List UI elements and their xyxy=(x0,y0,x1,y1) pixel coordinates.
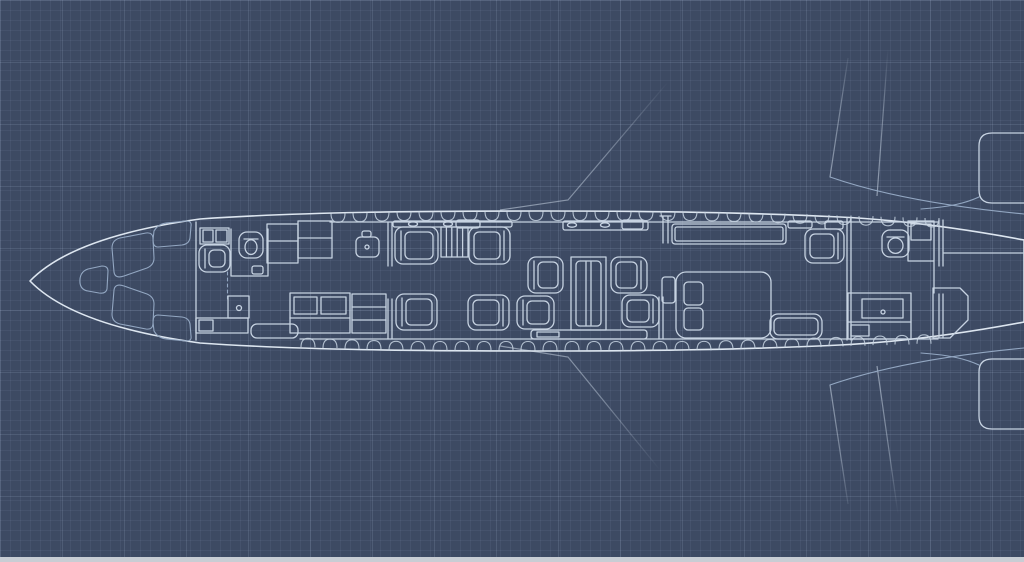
club-cabinet xyxy=(441,227,468,257)
galley-faucet xyxy=(362,231,371,237)
conf-seat-br-cushion xyxy=(627,300,649,322)
bottom-cabin-window xyxy=(587,342,601,351)
wing-leading-edge-bottom xyxy=(500,346,660,470)
bottom-cabin-window xyxy=(873,336,887,345)
conf-table-top xyxy=(576,261,601,326)
aft-club-seat-cushion xyxy=(810,234,834,258)
rail-cup-d xyxy=(601,223,610,227)
fwd-closet xyxy=(352,294,386,333)
aft-lav-toilet-bowl xyxy=(888,238,903,253)
top-cabin-window xyxy=(573,212,587,221)
galley-lower-tray-a xyxy=(294,297,317,314)
floor-plan-drawing xyxy=(0,0,1024,562)
bottom-cabin-window xyxy=(653,342,667,351)
top-cabin-window xyxy=(463,212,477,221)
fwd-lav-door-handle xyxy=(252,266,263,274)
galley-upper-a xyxy=(267,224,298,263)
divan-cushion-b xyxy=(684,308,703,330)
top-cabin-window xyxy=(397,212,411,221)
windscreen-upper-outer xyxy=(153,221,191,247)
fuselage-outline xyxy=(30,211,1024,351)
club-seat-2-cushion xyxy=(474,232,500,259)
aft-vanity-drain xyxy=(881,310,885,314)
cockpit-windscreen-panels xyxy=(80,221,191,341)
bottom-cabin-window xyxy=(345,340,359,349)
wing-leading-edge-top xyxy=(500,82,668,210)
top-cabin-window xyxy=(485,212,499,221)
conf-seat-tr-cushion xyxy=(616,262,637,288)
windscreen-center xyxy=(80,266,108,293)
engine-pylon-top xyxy=(921,197,979,209)
aft-vanity-drawer xyxy=(851,325,869,336)
entry-counter-drawer xyxy=(199,320,213,331)
windscreen-lower-inner xyxy=(112,285,154,329)
engine-nacelle-top xyxy=(979,133,1024,203)
galley-sink xyxy=(356,237,379,257)
aft-vanity xyxy=(848,293,911,339)
bottom-cabin-window xyxy=(433,342,447,351)
engine-nacelle-bottom xyxy=(979,359,1024,429)
engine-pylon-bottom xyxy=(921,353,979,365)
aft-bench-cushion xyxy=(774,318,818,335)
top-cabin-window xyxy=(595,212,609,221)
windscreen-lower-outer xyxy=(153,315,191,341)
galley-sink-drain xyxy=(365,245,369,249)
avionics-cell-a xyxy=(203,230,213,242)
bottom-cabin-window xyxy=(543,342,557,351)
galley-upper-b xyxy=(298,221,332,258)
top-cabin-window xyxy=(617,212,631,221)
bottom-cabin-window xyxy=(565,342,579,351)
top-cabin-window xyxy=(551,212,565,221)
side-table xyxy=(662,277,675,303)
fwd-lav-toilet-bowl xyxy=(245,240,257,255)
fwd-wardrobe-knob xyxy=(237,306,242,311)
avionics-cell-b xyxy=(216,230,227,242)
fwd-wardrobe xyxy=(228,296,249,318)
conf-seat-tl-cushion xyxy=(538,262,558,288)
tailplane-leading-edge-bottom xyxy=(830,385,848,504)
divan-cushion-a xyxy=(684,282,703,305)
aircraft-floor-plan-blueprint xyxy=(0,0,1024,562)
top-cabin-window xyxy=(353,213,367,222)
conf-side-rail-tray xyxy=(537,332,559,337)
tail-door xyxy=(933,288,968,338)
club-seat-1-cushion xyxy=(405,232,433,259)
bottom-border-strip xyxy=(0,557,1024,562)
bottom-cabin-window xyxy=(411,342,425,351)
top-cabin-window xyxy=(375,212,389,221)
bottom-cabin-window xyxy=(389,341,403,350)
galley-lower xyxy=(290,293,350,333)
club-seat-3-cushion xyxy=(406,299,432,325)
top-cabin-window xyxy=(639,212,653,221)
bottom-cabin-window xyxy=(367,341,381,350)
aft-vanity-basin xyxy=(862,299,903,318)
cockpit-jump-seat-cushion xyxy=(209,250,225,267)
top-cabin-window xyxy=(441,212,455,221)
bottom-cabin-window xyxy=(323,339,337,348)
top-cabin-window xyxy=(419,212,433,221)
galley-lower-tray-b xyxy=(321,297,346,314)
top-cabin-window xyxy=(529,212,543,221)
rail-cup-c xyxy=(568,223,577,227)
top-cabin-window xyxy=(331,213,345,222)
bottom-cabin-window xyxy=(477,342,491,351)
top-cabin-window xyxy=(507,212,521,221)
bottom-cabin-window xyxy=(609,342,623,351)
club-seat-4-cushion xyxy=(473,300,499,325)
conf-seat-bl-cushion xyxy=(527,301,549,324)
bottom-cabin-window xyxy=(631,342,645,351)
tailplane-trailing-edge-top xyxy=(877,48,888,196)
credenza-top xyxy=(675,227,783,241)
cabin-furniture xyxy=(196,216,1024,340)
tailplane-leading-edge-top xyxy=(830,58,848,177)
tailplane-trailing-edge-bottom xyxy=(877,366,898,514)
bottom-cabin-window xyxy=(455,342,469,351)
entry-door-mat xyxy=(251,324,298,338)
windscreen-upper-inner xyxy=(112,233,154,277)
